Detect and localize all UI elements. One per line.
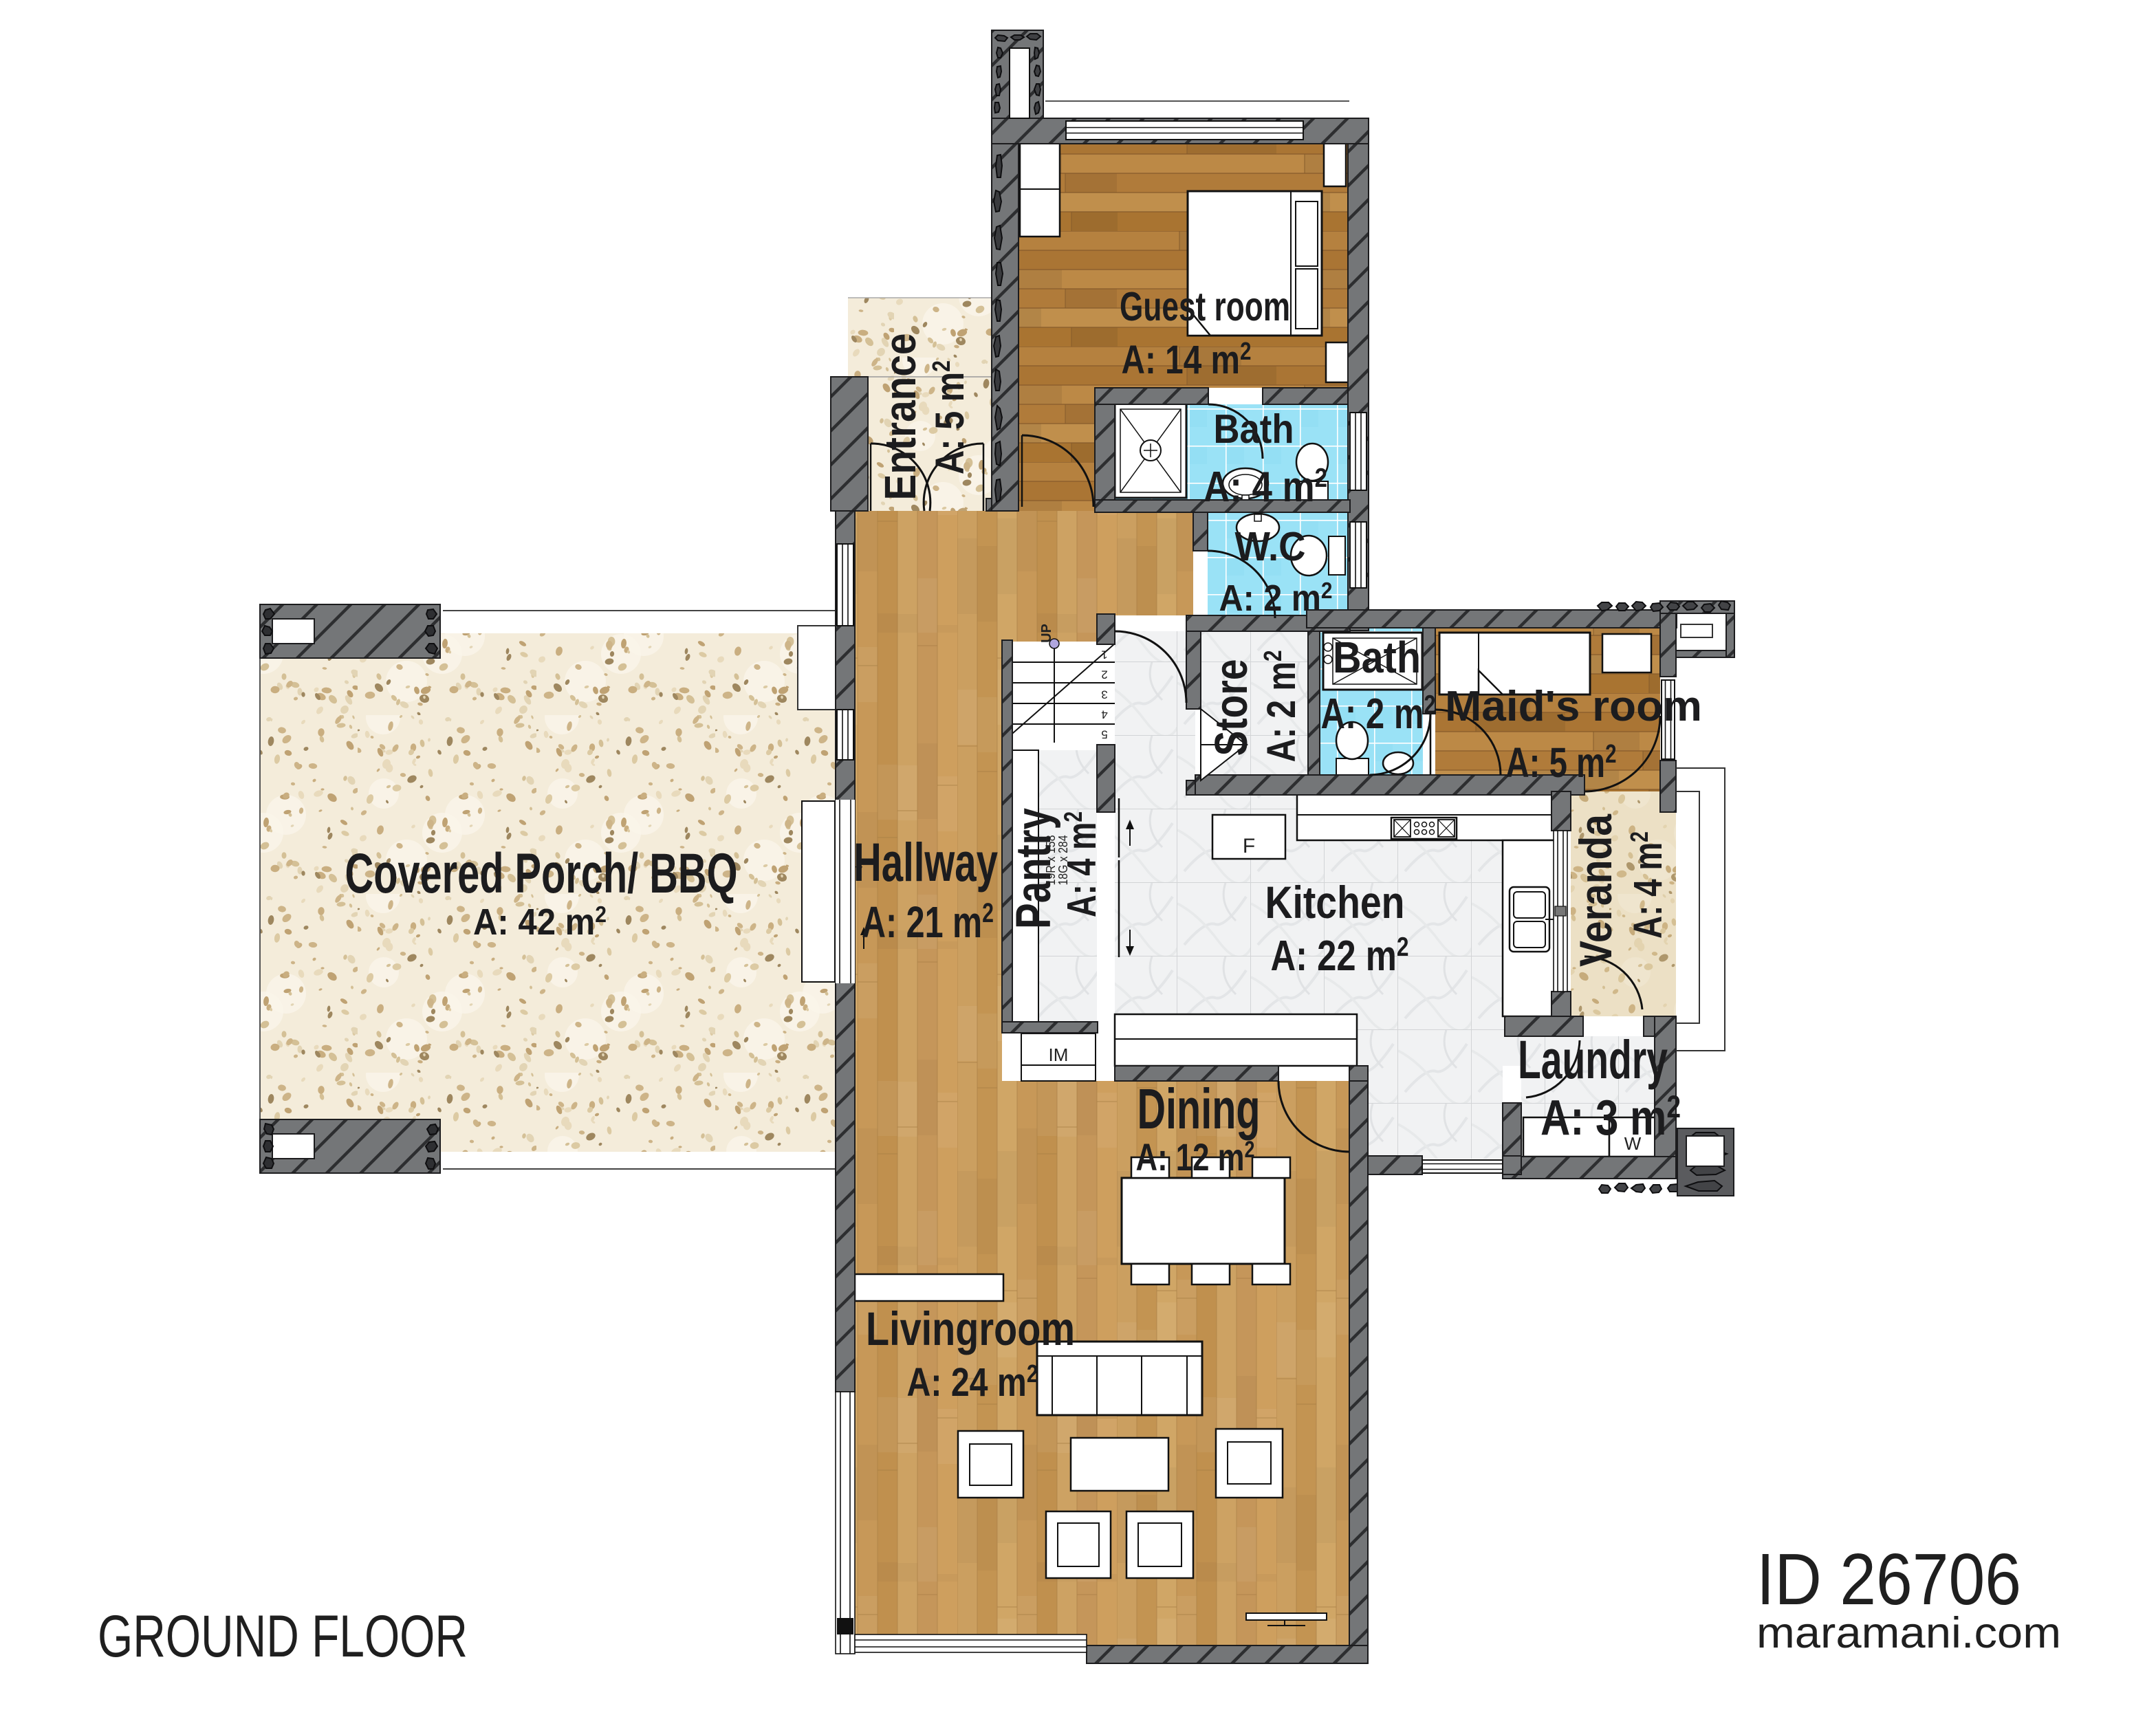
svg-text:A: 5 m2: A: 5 m2 [927, 360, 972, 474]
svg-text:Laundry: Laundry [1518, 1029, 1668, 1090]
svg-text:Bath: Bath [1333, 633, 1421, 682]
svg-text:Maid's room: Maid's room [1445, 682, 1702, 730]
svg-text:Guest room: Guest room [1120, 283, 1290, 329]
svg-text:Hallway: Hallway [853, 832, 998, 893]
svg-text:A: 2 m2: A: 2 m2 [1259, 650, 1304, 763]
svg-text:Veranda: Veranda [1571, 813, 1621, 967]
svg-text:IM: IM [1049, 1045, 1069, 1065]
svg-text:A: 24 m2: A: 24 m2 [907, 1359, 1038, 1405]
svg-text:Bath: Bath [1214, 406, 1294, 452]
svg-text:W.C: W.C [1235, 523, 1306, 569]
svg-text:Covered Porch/ BBQ: Covered Porch/ BBQ [345, 842, 738, 905]
svg-text:A: 42 m2: A: 42 m2 [473, 901, 607, 943]
svg-text:A: 5 m2: A: 5 m2 [1506, 739, 1617, 786]
svg-text:3: 3 [1101, 688, 1107, 701]
svg-text:A: 4 m2: A: 4 m2 [1625, 831, 1670, 939]
svg-text:4: 4 [1101, 708, 1107, 721]
svg-text:Livingroom: Livingroom [866, 1303, 1075, 1355]
svg-text:W: W [1624, 1133, 1642, 1154]
svg-text:maramani.com: maramani.com [1756, 1609, 2061, 1657]
svg-text:2: 2 [1101, 668, 1107, 681]
svg-text:A: 12 m2: A: 12 m2 [1136, 1136, 1255, 1179]
svg-text:ID 26706: ID 26706 [1756, 1539, 2021, 1620]
svg-text:Dining: Dining [1137, 1077, 1261, 1141]
svg-text:Kitchen: Kitchen [1265, 877, 1405, 928]
svg-text:A: 3 m2: A: 3 m2 [1540, 1089, 1681, 1146]
svg-text:GROUND FLOOR: GROUND FLOOR [98, 1604, 468, 1670]
svg-text:A: 22 m2: A: 22 m2 [1271, 932, 1409, 980]
svg-text:5: 5 [1101, 728, 1107, 741]
svg-text:Store: Store [1206, 659, 1257, 756]
svg-text:A: 2 m2: A: 2 m2 [1321, 690, 1436, 738]
svg-text:A: 21 m2: A: 21 m2 [862, 897, 994, 947]
svg-text:A: 4 m2: A: 4 m2 [1204, 463, 1327, 511]
svg-text:A: 14 m2: A: 14 m2 [1122, 337, 1252, 382]
svg-text:F: F [1243, 835, 1255, 857]
svg-text:UP: UP [1039, 624, 1054, 643]
svg-text:Entrance: Entrance [875, 333, 925, 501]
svg-text:A: 2 m2: A: 2 m2 [1219, 578, 1333, 619]
svg-text:A: 4 m2: A: 4 m2 [1058, 811, 1104, 917]
svg-text:19R x 158: 19R x 158 [1044, 835, 1058, 886]
svg-text:1: 1 [1101, 648, 1107, 661]
